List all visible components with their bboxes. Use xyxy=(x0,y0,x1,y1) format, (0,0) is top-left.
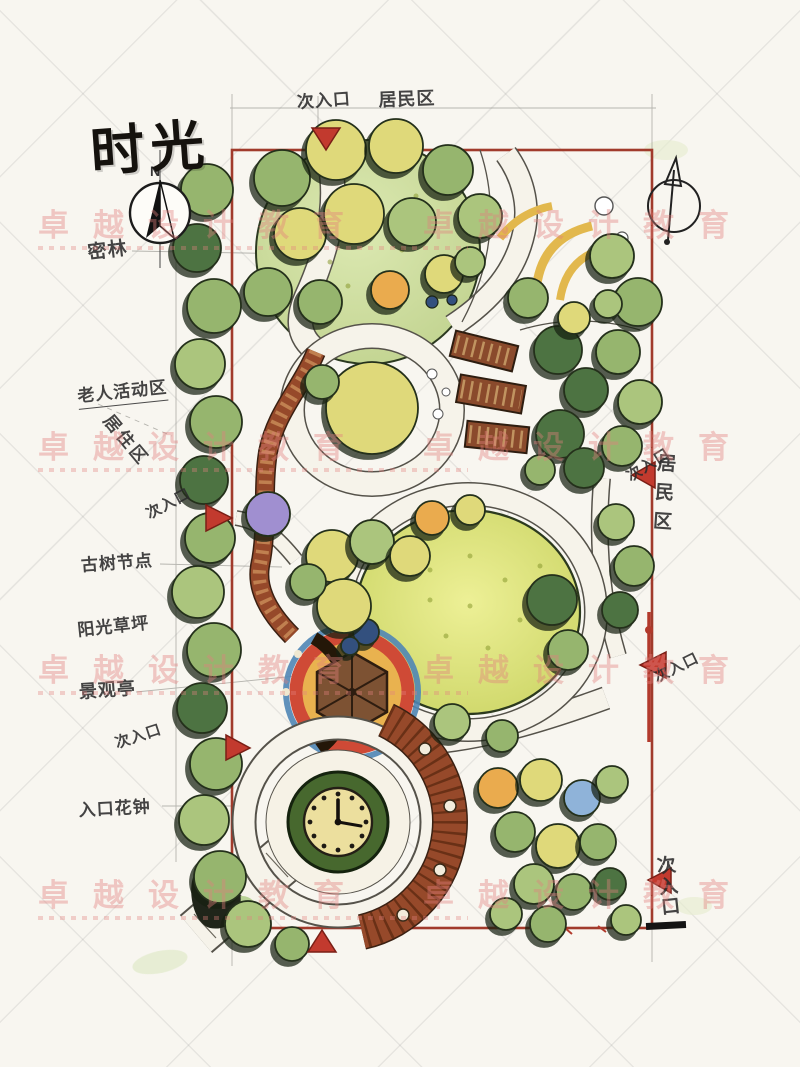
label-entrance-top: 次入口 xyxy=(296,84,352,113)
label-ancient-tree-node: 古树节点 xyxy=(80,546,154,576)
pergola-decks xyxy=(450,331,529,454)
label-dense-forest: 密林 xyxy=(86,233,129,265)
label-scenic-pavilion: 景观亭 xyxy=(78,674,137,704)
entrance-marker-bottom xyxy=(308,930,336,952)
big-ancient-tree xyxy=(326,362,418,454)
secondary-compass-sketch xyxy=(648,158,700,245)
label-residential-top: 居民区 xyxy=(378,84,436,112)
plan-title: 时光 xyxy=(87,100,212,187)
flower-clock-plaza xyxy=(244,728,432,916)
clock-face xyxy=(304,788,372,856)
landscape-plan-sheet: N 时光 次入口 居民区 密林 老人活动区 居住区 次入口 古树节点 阳光草坪 … xyxy=(0,0,800,1067)
label-entrance-flower-clock: 入口花钟 xyxy=(78,792,151,821)
